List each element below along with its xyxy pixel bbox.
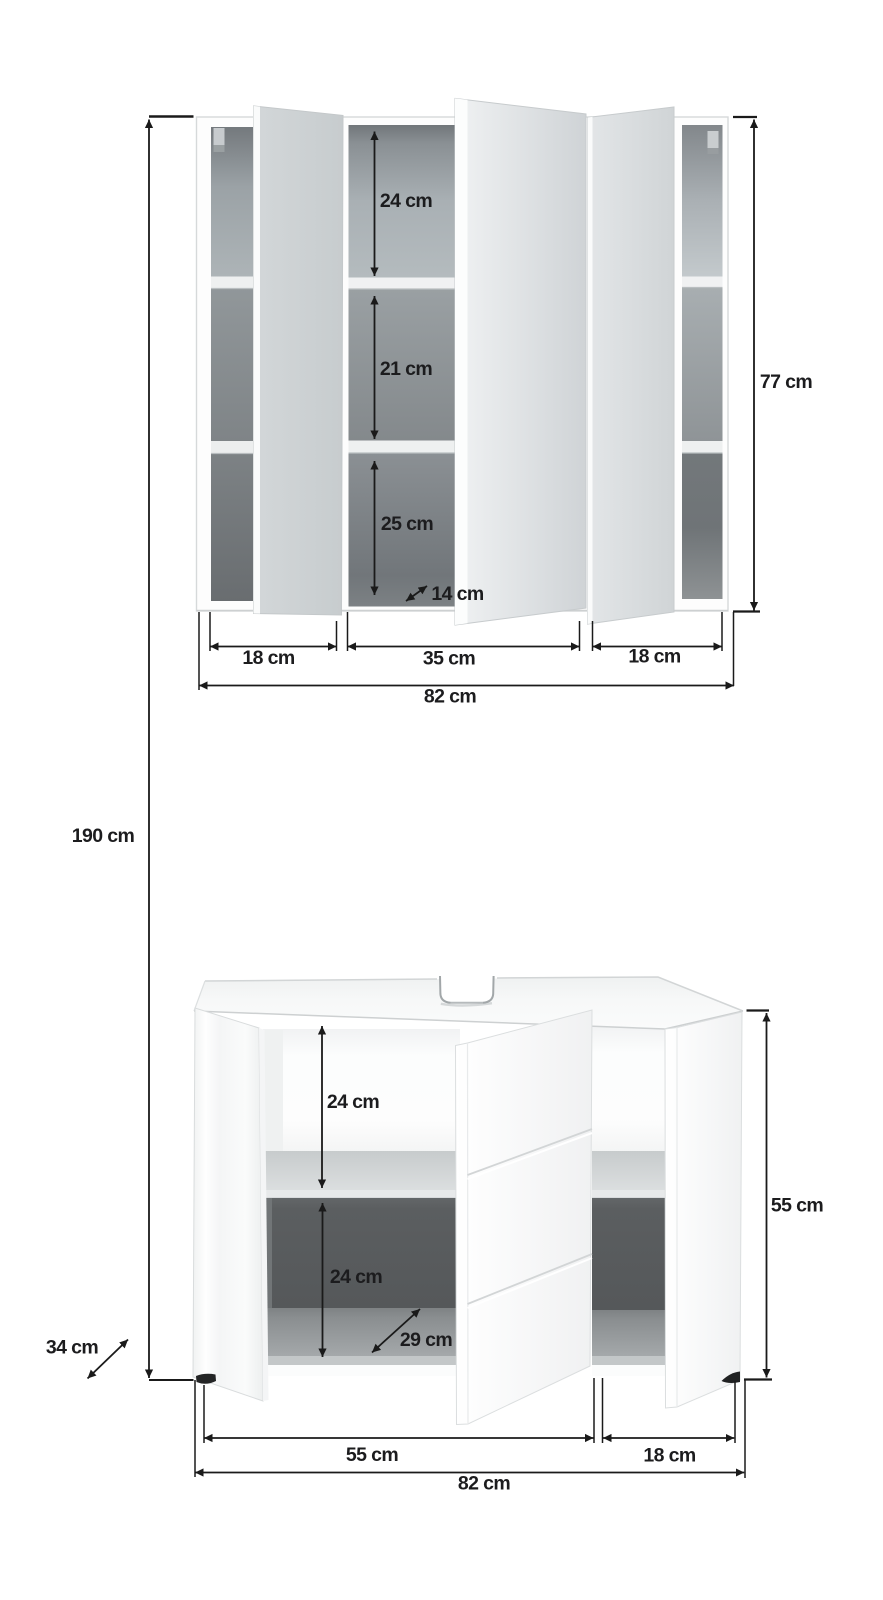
svg-text:21 cm: 21 cm <box>380 358 433 380</box>
svg-text:55 cm: 55 cm <box>771 1195 824 1217</box>
svg-text:82 cm: 82 cm <box>424 686 477 708</box>
svg-text:24 cm: 24 cm <box>327 1091 380 1113</box>
svg-text:24 cm: 24 cm <box>330 1266 383 1288</box>
svg-text:24 cm: 24 cm <box>380 190 433 212</box>
svg-text:18 cm: 18 cm <box>242 647 295 669</box>
svg-text:55 cm: 55 cm <box>346 1444 399 1466</box>
svg-text:77 cm: 77 cm <box>760 371 813 393</box>
svg-text:14 cm: 14 cm <box>431 583 484 605</box>
svg-text:82 cm: 82 cm <box>458 1473 511 1495</box>
svg-text:35 cm: 35 cm <box>423 648 476 670</box>
svg-text:25 cm: 25 cm <box>381 513 434 535</box>
svg-text:34 cm: 34 cm <box>46 1337 99 1359</box>
svg-text:190 cm: 190 cm <box>72 825 135 847</box>
svg-text:18 cm: 18 cm <box>643 1445 696 1467</box>
svg-text:29 cm: 29 cm <box>400 1329 453 1351</box>
svg-text:18 cm: 18 cm <box>628 646 681 668</box>
